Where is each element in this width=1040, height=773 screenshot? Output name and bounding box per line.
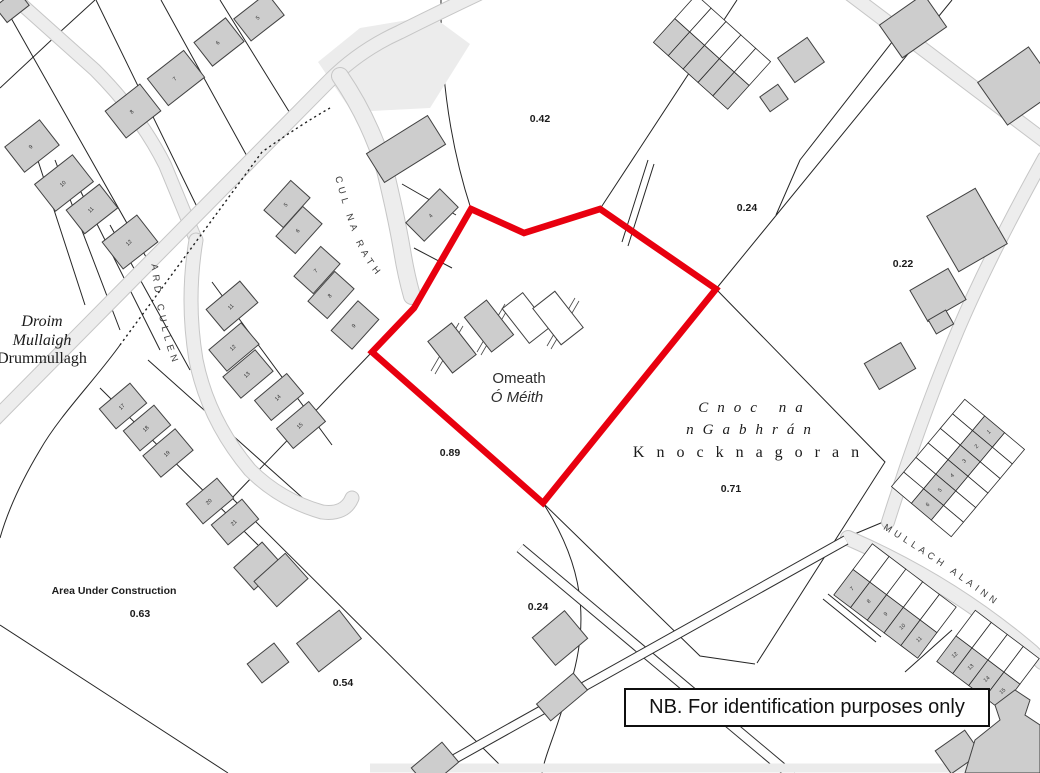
building <box>297 610 362 672</box>
building <box>247 643 289 683</box>
site-map-svg: 123456789101112131415 567891011125678941… <box>0 0 1040 773</box>
building <box>366 116 445 183</box>
identification-note-box: NB. For identification purposes only <box>624 688 990 727</box>
road-name: ARD CULLEN <box>148 263 181 367</box>
building <box>864 343 915 390</box>
area-value-063: 0.63 <box>130 608 151 620</box>
terrace-block: 123456 <box>891 399 1024 536</box>
building <box>879 0 946 58</box>
area-value-022: 0.22 <box>893 258 914 270</box>
identification-note-text: NB. For identification purposes only <box>649 696 965 719</box>
area-value-024-lower: 0.24 <box>528 601 549 613</box>
townland-label-omeath-en: Omeath <box>492 370 545 387</box>
area-value-071: 0.71 <box>721 483 742 495</box>
area-value-042: 0.42 <box>530 113 551 125</box>
area-value-024-upper: 0.24 <box>737 202 758 214</box>
building <box>411 742 458 773</box>
building <box>537 673 588 721</box>
townland-label-drummullagh-en: Drummullagh <box>0 350 87 367</box>
building <box>532 611 587 666</box>
cadastral-map-page: 123456789101112131415 567891011125678941… <box>0 0 1040 773</box>
building <box>760 84 788 111</box>
area-under-construction-label: Area Under Construction <box>52 585 177 597</box>
townland-label-drummullagh-ga-1: Droim <box>20 313 62 330</box>
terrace-block <box>653 0 770 109</box>
bottom-edge-strip <box>370 764 1040 773</box>
area-value-054: 0.54 <box>333 677 354 689</box>
building <box>778 37 825 82</box>
townland-label-knocknagoran-ga-1: Cnoc na <box>698 400 811 416</box>
area-value-089: 0.89 <box>440 447 461 459</box>
townland-label-drummullagh-ga-2: Mullaigh <box>12 332 72 349</box>
townland-label-knocknagoran-ga-2: nGabhrán <box>686 422 820 438</box>
building <box>978 47 1040 125</box>
building <box>428 323 476 373</box>
townland-label-knocknagoran-en: Knocknagoran <box>633 444 871 461</box>
townland-label-omeath-ga: Ó Méith <box>491 389 544 406</box>
building <box>533 291 583 344</box>
